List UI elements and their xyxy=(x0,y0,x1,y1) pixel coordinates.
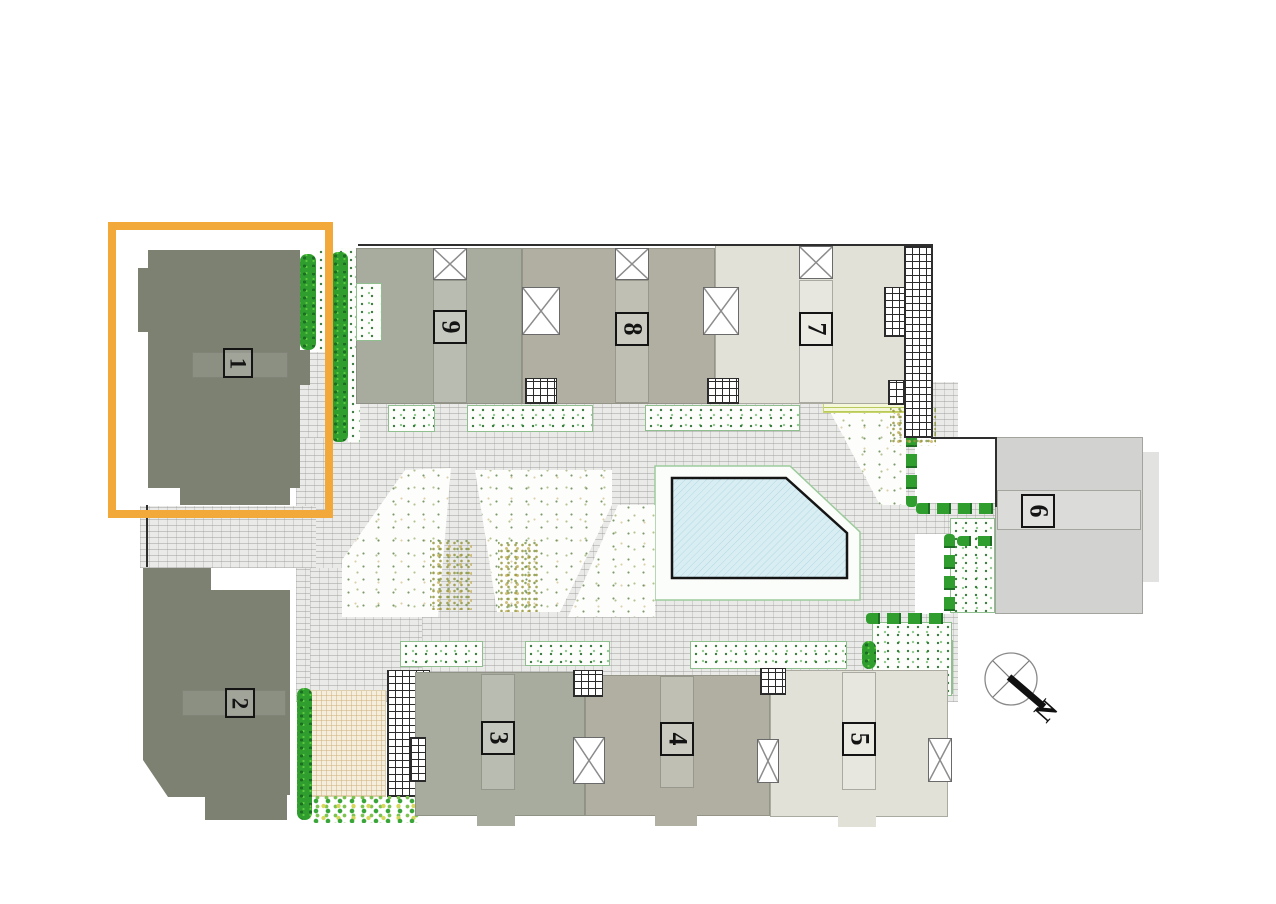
tree-cluster-center xyxy=(498,542,538,612)
terrace-grid-7-south xyxy=(888,380,905,405)
building-8-number: 8 xyxy=(619,323,645,336)
terrace-grid-4 xyxy=(573,670,603,697)
building-5-entry-tab xyxy=(838,815,876,827)
hedge-dashed-east xyxy=(944,534,955,616)
building-7-label[interactable]: 7 xyxy=(799,312,833,346)
terrace-grid-7-west xyxy=(884,287,905,337)
building-3-label[interactable]: 3 xyxy=(481,721,515,755)
skylight-9-8 xyxy=(522,287,560,335)
building-9-number: 9 xyxy=(437,321,463,334)
building-8-label[interactable]: 8 xyxy=(615,312,649,346)
shrub-row-south xyxy=(310,796,422,823)
terrace-grid-7-east xyxy=(904,246,932,438)
open-area-north-of-block6 xyxy=(915,437,995,503)
terrace-grid-8 xyxy=(707,378,739,404)
tree-cluster-west xyxy=(430,540,472,610)
skylight-3-4 xyxy=(573,737,605,784)
terrace-grid-9 xyxy=(525,378,557,404)
building-4-number: 4 xyxy=(664,733,690,746)
building-4-entry-tab xyxy=(655,814,697,826)
building-4-label[interactable]: 4 xyxy=(660,722,694,756)
site-boundary-block6 xyxy=(995,437,997,507)
planter-notch-block9 xyxy=(356,283,382,341)
building-5-label[interactable]: 5 xyxy=(842,722,876,756)
shaft-box-9-top xyxy=(433,248,467,280)
building-6-corridor xyxy=(997,490,1141,530)
building-6-east-wing xyxy=(1143,452,1159,582)
planter-strip-3b xyxy=(525,641,610,666)
swimming-pool xyxy=(648,460,866,606)
building-2-label[interactable]: 2 xyxy=(225,688,255,718)
planter-strip-9a xyxy=(388,405,435,432)
hedge-dashed-south xyxy=(866,613,950,624)
building-6-label[interactable]: 6 xyxy=(1021,494,1055,528)
shaft-box-8-top xyxy=(615,248,649,280)
pool-water xyxy=(672,478,847,578)
playground-court xyxy=(310,690,386,797)
planter-strip-9b xyxy=(467,405,593,432)
site-boundary-east-horizontal xyxy=(931,437,997,439)
hedge-dashed-short xyxy=(957,536,997,546)
building-9-label[interactable]: 9 xyxy=(433,310,467,344)
planter-strip-4 xyxy=(690,641,847,669)
shaft-box-7-top xyxy=(799,246,833,279)
hedge-near-core5 xyxy=(862,641,876,669)
terrace-grid-5-west xyxy=(760,668,786,695)
north-arrow-icon: N xyxy=(980,646,1090,741)
building-6-number: 6 xyxy=(1025,505,1051,518)
skylight-5-east xyxy=(928,738,952,782)
planter-strip-8 xyxy=(645,405,800,431)
hedge-dashed-mid xyxy=(916,503,996,514)
skylight-4-5 xyxy=(757,739,779,783)
site-plan-canvas: 1 2 3 4 5 6 7 8 9 N xyxy=(0,0,1276,904)
hedge-west-long xyxy=(331,252,348,442)
building-5-number: 5 xyxy=(846,733,872,746)
building-3-number: 3 xyxy=(485,732,511,745)
planter-east-of-pool xyxy=(950,518,995,613)
site-boundary-north xyxy=(358,244,933,246)
site-boundary-east-vertical xyxy=(931,246,933,439)
building-2-number: 2 xyxy=(229,697,252,709)
planter-strip-3a xyxy=(400,641,483,667)
building-1-highlight-box xyxy=(108,222,333,518)
skylight-8-7 xyxy=(703,287,739,335)
building-3-entry-tab xyxy=(477,814,515,826)
building-7-number: 7 xyxy=(803,323,829,336)
terrace-grid-3-west xyxy=(410,737,426,782)
